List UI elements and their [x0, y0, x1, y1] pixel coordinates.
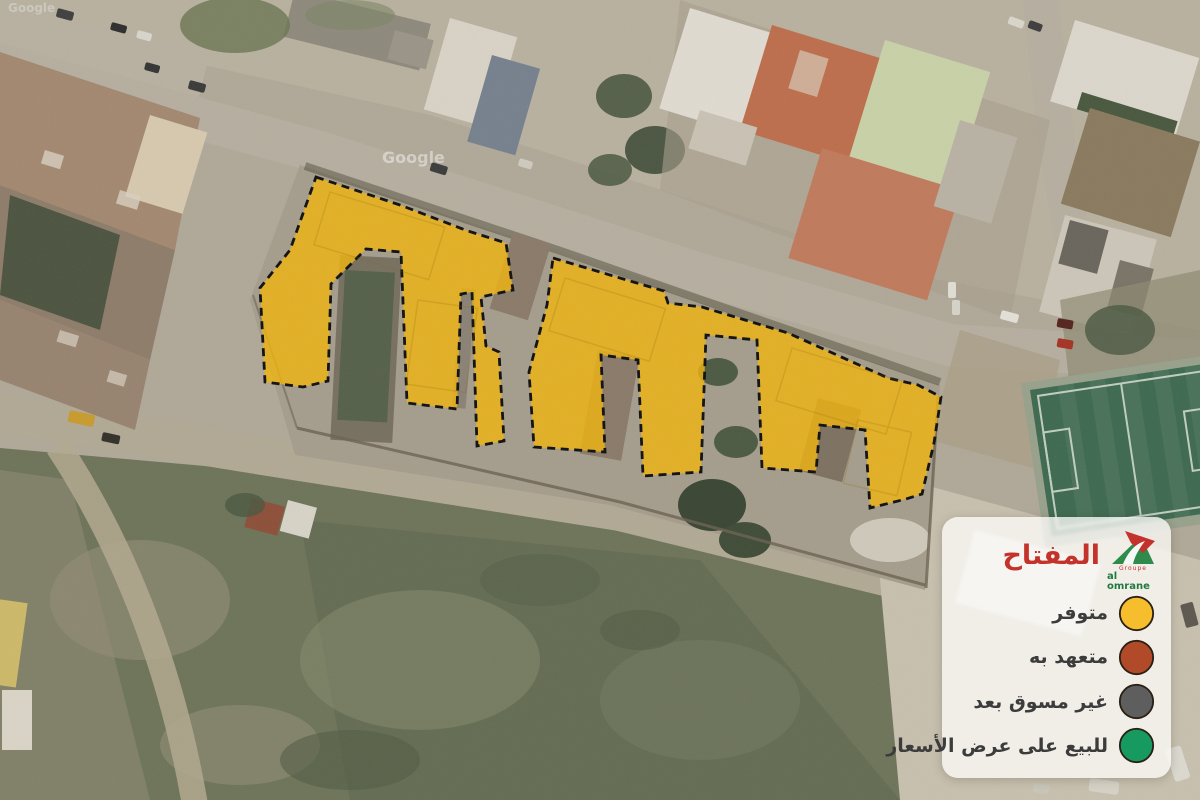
satellite-map-screenshot: Google Google المفتاح Groupe al omrane م…	[0, 0, 1200, 800]
legend-color-dot-rust	[1118, 639, 1155, 676]
al-omrane-logo-icon	[1110, 528, 1156, 568]
legend-title: المفتاح	[1002, 542, 1100, 579]
legend-color-dot-green	[1118, 727, 1155, 764]
legend-color-dot-gray	[1118, 683, 1155, 720]
legend-color-dot-yellow	[1118, 595, 1155, 632]
legend-item-committed: متعهد به	[952, 635, 1159, 679]
brand-name: al omrane	[1107, 572, 1159, 592]
legend-item-label: غير مسوق بعد	[973, 691, 1108, 713]
al-omrane-logo: Groupe al omrane	[1107, 528, 1159, 592]
legend-item-for-sale-price-offer: للبيع على عرض الأسعار	[952, 724, 1159, 768]
legend-item-label: للبيع على عرض الأسعار	[886, 735, 1108, 757]
legend-item-available: متوفر	[952, 591, 1159, 635]
legend-item-label: متعهد به	[1029, 646, 1108, 668]
legend-panel: المفتاح Groupe al omrane متوفر متعهد به …	[942, 517, 1171, 778]
legend-item-not-marketed: غير مسوق بعد	[952, 680, 1159, 724]
legend-header: المفتاح Groupe al omrane	[952, 531, 1159, 589]
legend-item-label: متوفر	[1052, 602, 1108, 624]
